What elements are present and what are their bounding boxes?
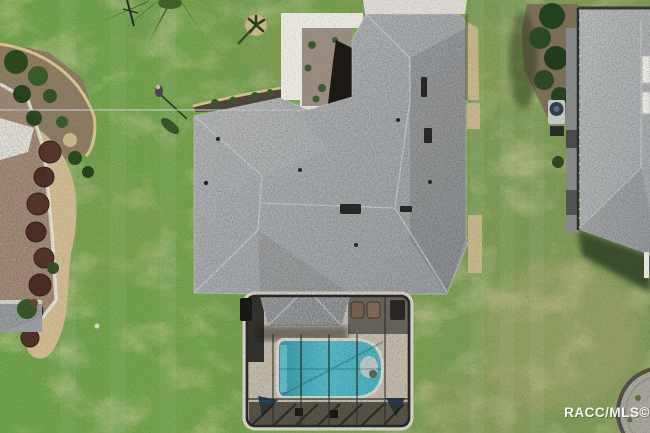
watermark-text: RACC/MLS© — [564, 405, 650, 420]
photo-grain — [0, 0, 650, 433]
aerial-photo-canvas: RACC/MLS© RACC/MLS© — [0, 0, 650, 433]
aerial-photo: RACC/MLS© RACC/MLS© — [0, 0, 650, 433]
